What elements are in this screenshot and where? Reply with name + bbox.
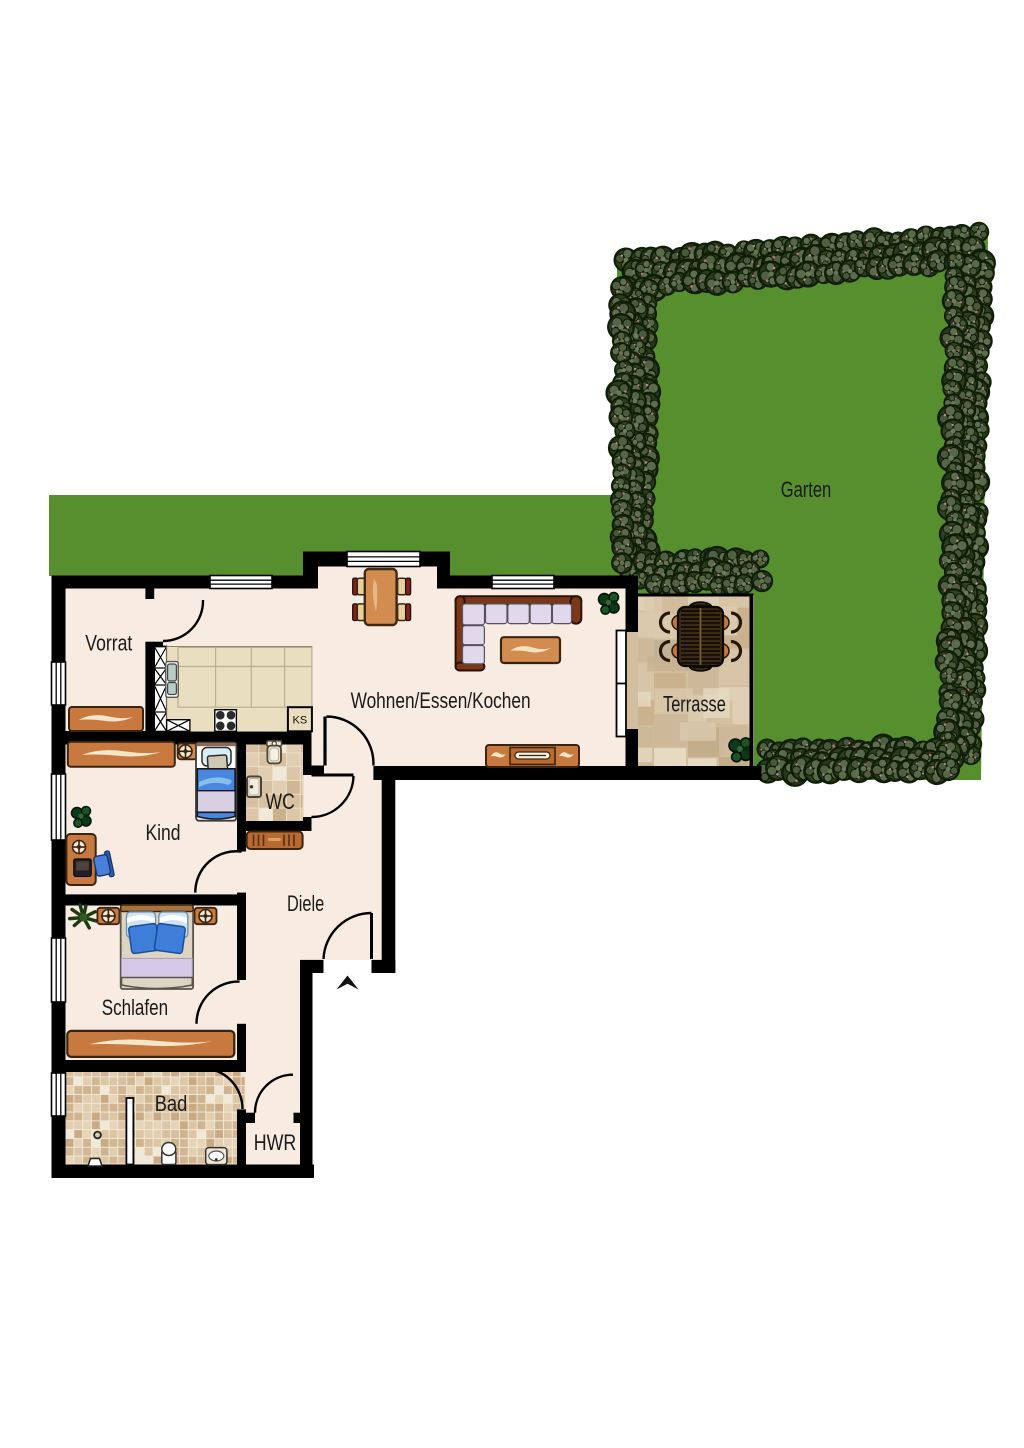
svg-text:Garten: Garten — [781, 477, 832, 502]
svg-text:Vorrat: Vorrat — [85, 630, 132, 655]
svg-text:Bad: Bad — [155, 1091, 188, 1116]
svg-text:Diele: Diele — [287, 891, 324, 916]
svg-text:HWR: HWR — [254, 1130, 297, 1155]
svg-text:KS: KS — [293, 715, 308, 727]
svg-text:Kind: Kind — [145, 820, 180, 845]
svg-text:Wohnen/Essen/Kochen: Wohnen/Essen/Kochen — [351, 688, 531, 713]
svg-text:WC: WC — [266, 789, 295, 814]
svg-text:Schlafen: Schlafen — [102, 995, 168, 1020]
svg-text:Terrasse: Terrasse — [663, 692, 726, 717]
